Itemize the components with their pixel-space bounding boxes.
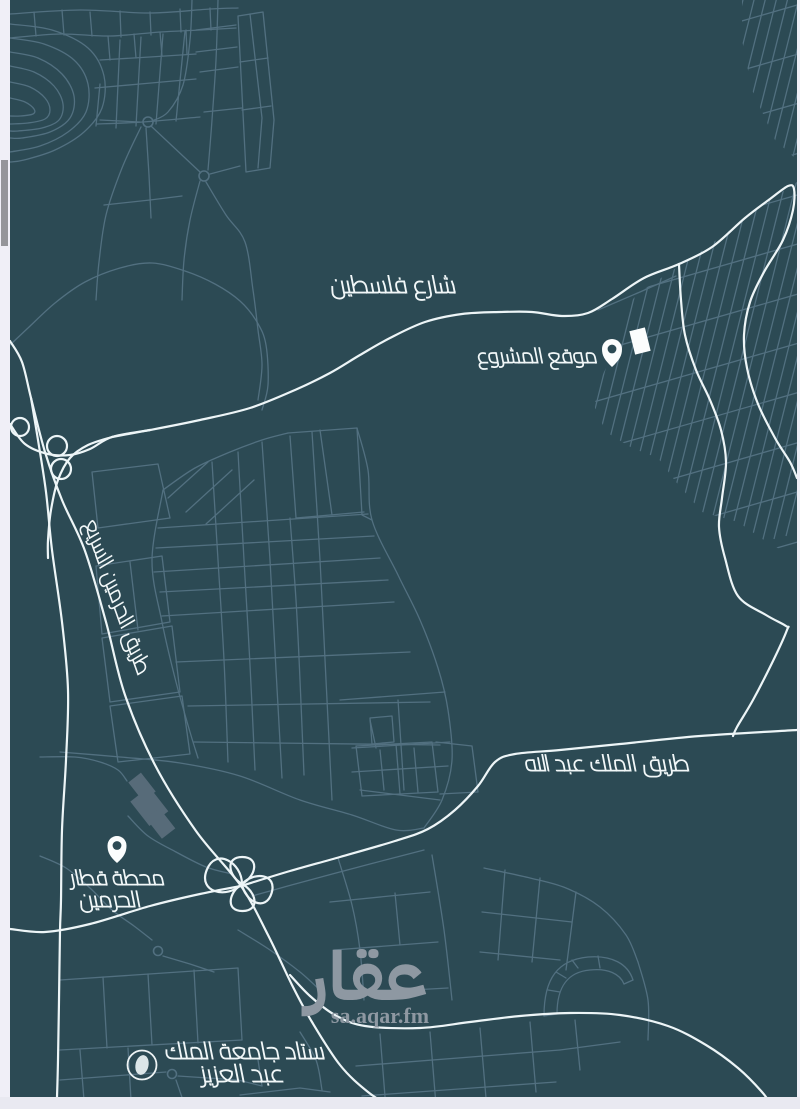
svg-text:sa.aqar.fm: sa.aqar.fm	[331, 1003, 429, 1028]
